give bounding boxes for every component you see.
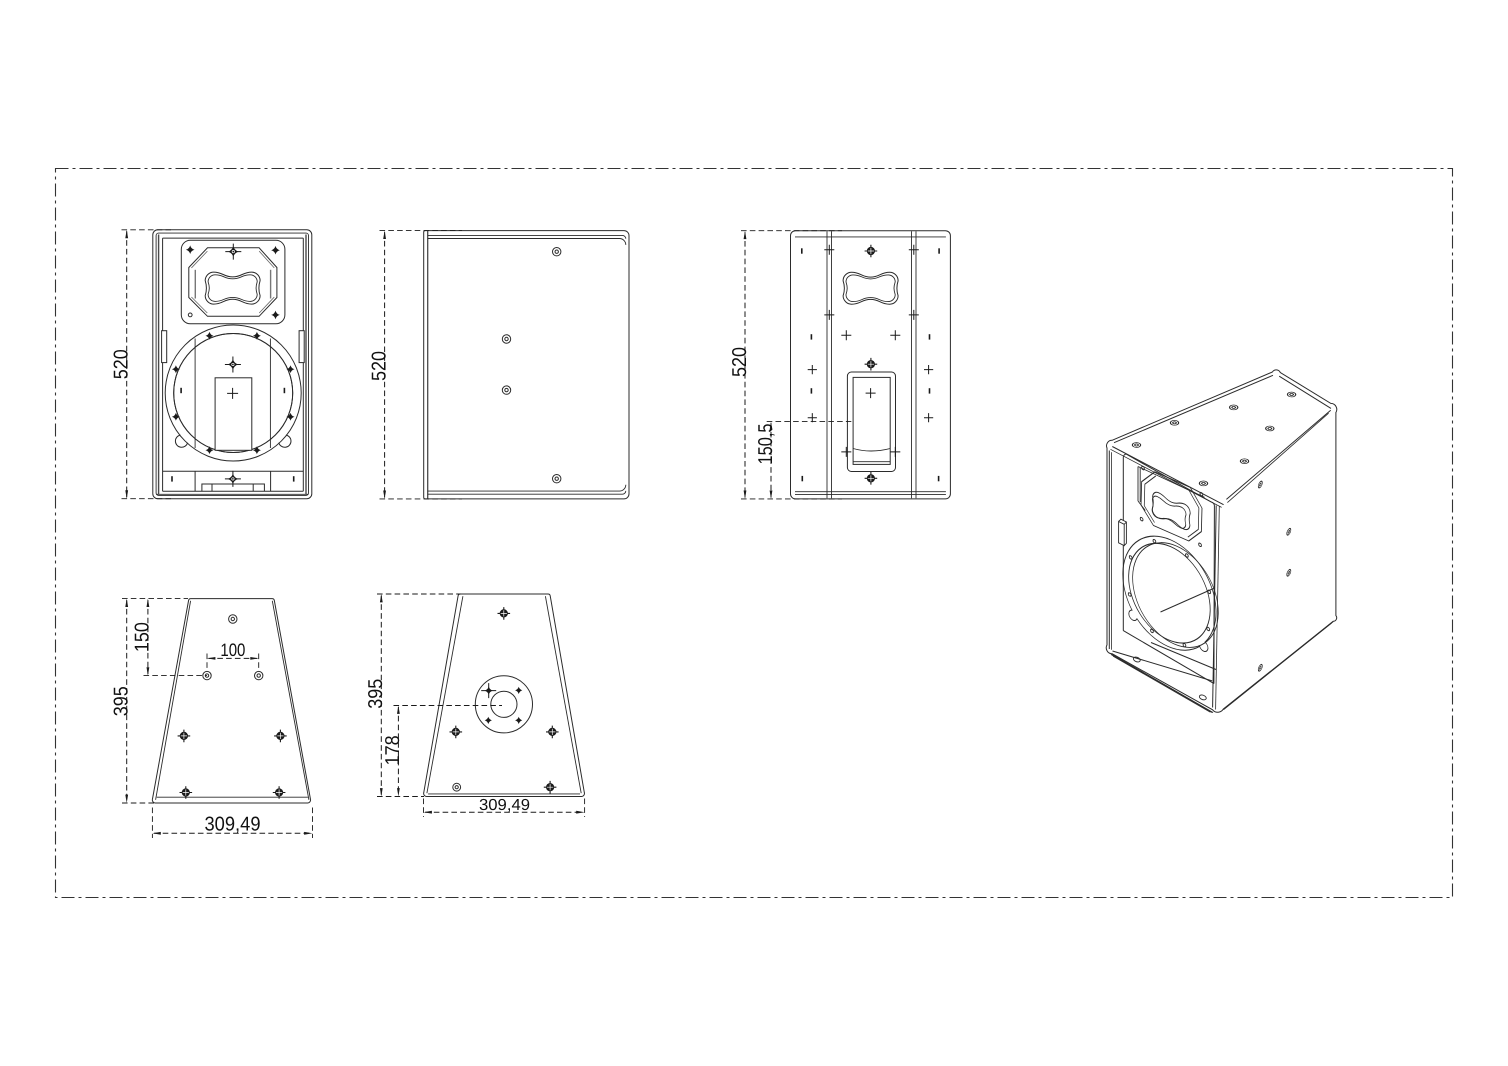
svg-text:520: 520	[111, 349, 133, 379]
svg-text:309,49: 309,49	[205, 813, 261, 835]
svg-text:395: 395	[111, 686, 133, 716]
svg-text:150,5: 150,5	[755, 424, 777, 465]
svg-text:309,49: 309,49	[479, 797, 530, 814]
svg-text:520: 520	[729, 347, 751, 377]
svg-text:100: 100	[220, 640, 245, 660]
svg-text:395: 395	[365, 679, 387, 709]
svg-text:178: 178	[382, 735, 404, 765]
svg-text:520: 520	[368, 351, 390, 381]
svg-text:150: 150	[132, 622, 154, 652]
